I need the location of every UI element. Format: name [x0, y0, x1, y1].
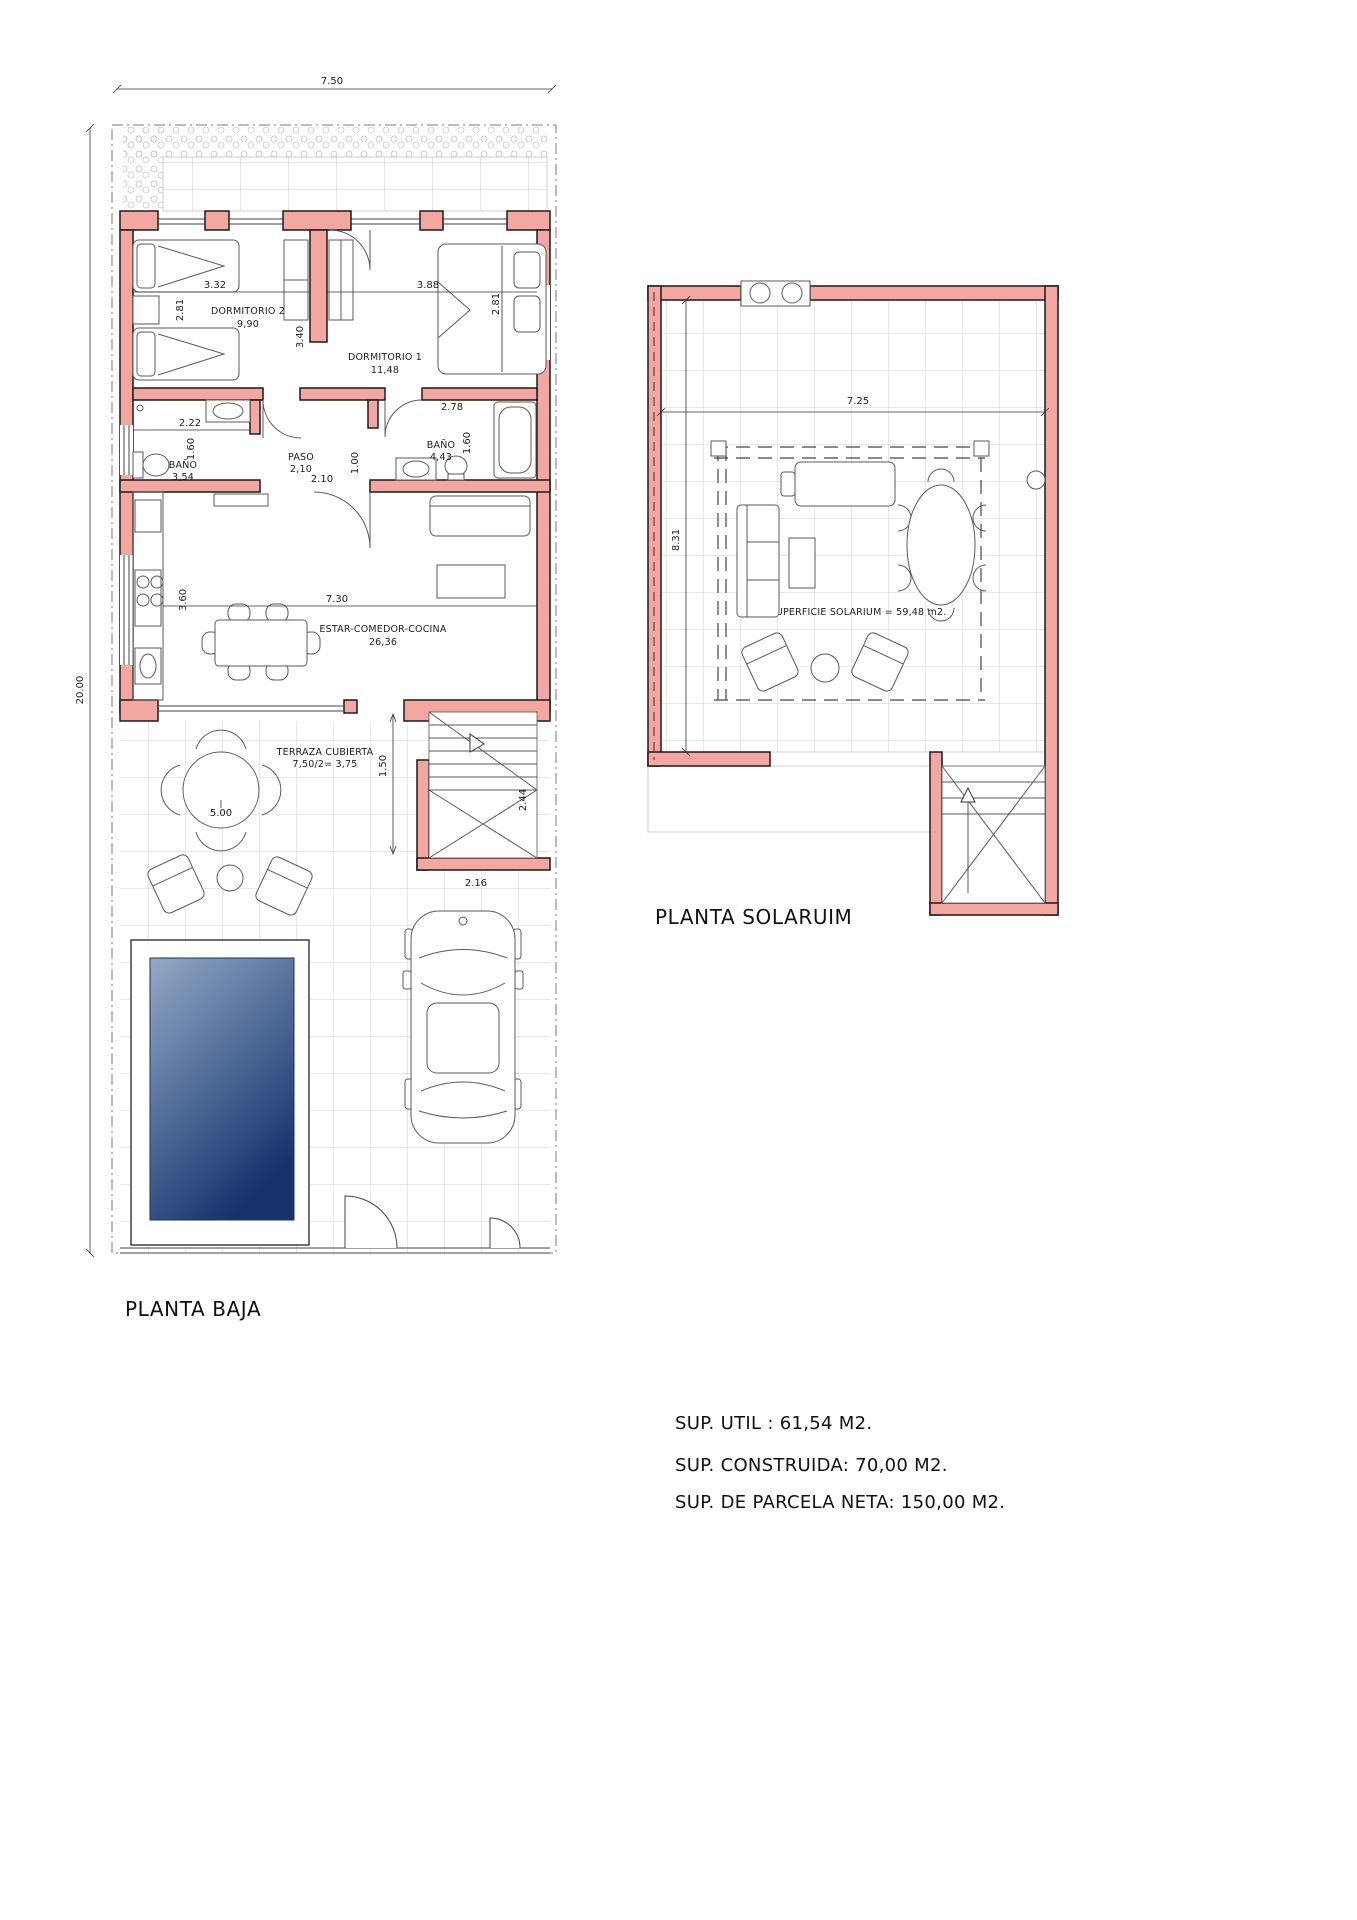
bano1-label: BAÑO	[169, 460, 197, 471]
summary-sup-parcela: SUP. DE PARCELA NETA: 150,00 M2.	[675, 1492, 1005, 1513]
planta-solarium-title: PLANTA SOLARUIM	[655, 905, 852, 929]
solarium-stairwell	[942, 766, 1045, 903]
dim-label: 2.81	[175, 299, 186, 321]
car	[403, 911, 523, 1143]
dormitorio2-area: 9,90	[237, 319, 259, 330]
planta-baja-title: PLANTA BAJA	[125, 1297, 261, 1321]
dim-label: 7.30	[326, 594, 348, 605]
dim-label: 1.60	[186, 438, 197, 460]
dormitorio1-label: DORMITORIO 1	[348, 352, 422, 363]
bedroom-divider-wall	[310, 230, 327, 342]
stairwell-left-wall	[930, 752, 942, 915]
solarium-surface-label: SUPERFICIE SOLARIUM = 59,48 m2.	[770, 607, 947, 618]
dim-label: 1.50	[378, 755, 389, 777]
summary-sup-util: SUP. UTIL : 61,54 M2.	[675, 1413, 872, 1434]
floor-plan-sheet: 7.50 20.00	[0, 0, 1357, 1920]
dim-label-height: 20.00	[75, 676, 86, 705]
stair-wall-bottom	[417, 858, 550, 870]
roof-vent-box	[741, 281, 810, 306]
dormitorio2-label: DORMITORIO 2	[211, 306, 285, 317]
pool	[131, 940, 309, 1245]
summary-sup-construida: SUP. CONSTRUIDA: 70,00 M2.	[675, 1455, 948, 1476]
paso-label: PASO	[288, 452, 314, 463]
gravel-strip	[123, 127, 547, 157]
solarium-right-wall	[1045, 286, 1058, 915]
dim-label: 2.22	[179, 418, 201, 429]
estar-label: ESTAR-COMEDOR-COCINA	[319, 624, 446, 635]
stairwell-bottom-wall	[930, 903, 1058, 915]
dim-label: 7.25	[847, 396, 869, 407]
planta-baja-plan: 7.50 20.00	[75, 76, 556, 1257]
dim-label: 2.10	[311, 474, 333, 485]
dim-label: 2.78	[441, 402, 463, 413]
dim-label: 3.60	[178, 589, 189, 611]
terraza-area: 7,50/2= 3,75	[293, 759, 358, 770]
porch-tiles	[163, 157, 547, 211]
terraza-label: TERRAZA CUBIERTA	[276, 747, 374, 758]
terrace-sliding-door	[158, 706, 344, 711]
plan-drawing: 7.50 20.00	[0, 0, 1357, 1920]
estar-area: 26,36	[369, 637, 397, 648]
dim-label: 8.31	[671, 529, 682, 551]
dim-label: 5.00	[210, 808, 232, 819]
dim-label: 3.32	[204, 280, 226, 291]
stair-wall	[417, 760, 429, 870]
dim-label: 1.00	[350, 452, 361, 474]
lower-roof-edge	[648, 766, 930, 832]
stairs	[429, 712, 537, 858]
dim-label: 1.60	[462, 432, 473, 454]
dim-label-width: 7.50	[321, 76, 343, 87]
bano1-area: 3,54	[172, 472, 194, 483]
dim-label: 2.16	[465, 878, 487, 889]
gravel-corner	[123, 127, 163, 211]
paso-area: 2,10	[290, 464, 312, 475]
dormitorio1-area: 11,48	[371, 365, 399, 376]
dim-label: 3.88	[417, 280, 439, 291]
dim-label: 2.44	[518, 789, 529, 811]
bano2-area: 4,43	[430, 452, 452, 463]
bano2-label: BAÑO	[427, 440, 455, 451]
planta-solarium-plan: 7.25 8.31 SUPERFICIE SOLARIUM = 59,48 m2…	[648, 281, 1058, 915]
dim-label: 2.81	[491, 293, 502, 315]
dim-label: 3.40	[295, 326, 306, 348]
